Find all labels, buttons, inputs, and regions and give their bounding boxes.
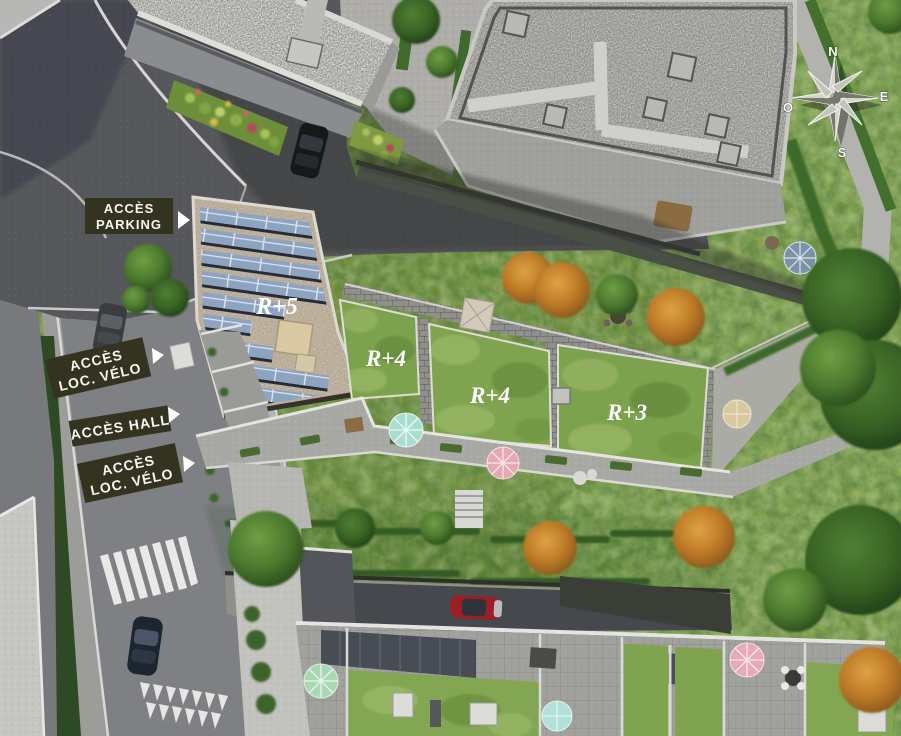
svg-text:R+4: R+4 [365, 346, 406, 371]
svg-text:N: N [828, 44, 837, 59]
svg-text:S: S [838, 145, 847, 160]
svg-text:E: E [880, 89, 889, 104]
svg-text:O: O [783, 100, 793, 115]
svg-text:R+4: R+4 [469, 383, 510, 408]
svg-text:ACCÈS: ACCÈS [104, 201, 155, 216]
svg-text:R+3: R+3 [606, 400, 647, 425]
svg-text:R+5: R+5 [255, 294, 298, 320]
svg-text:PARKING: PARKING [96, 217, 162, 232]
